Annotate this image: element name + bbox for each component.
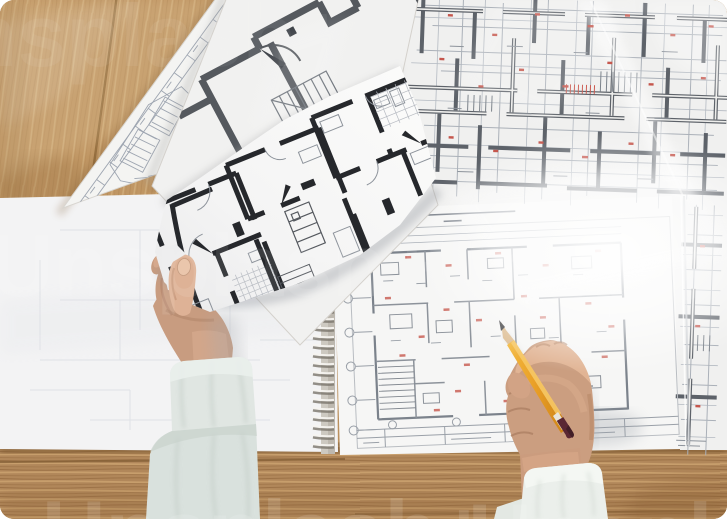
svg-text:Unsplash+: Unsplash+ <box>0 216 437 315</box>
svg-text:Unsplash+: Unsplash+ <box>42 482 489 519</box>
svg-text:Unsplash+: Unsplash+ <box>0 0 347 85</box>
svg-text:Unsplash+: Unsplash+ <box>468 485 727 519</box>
svg-text:Unsplash+: Unsplash+ <box>425 219 727 318</box>
